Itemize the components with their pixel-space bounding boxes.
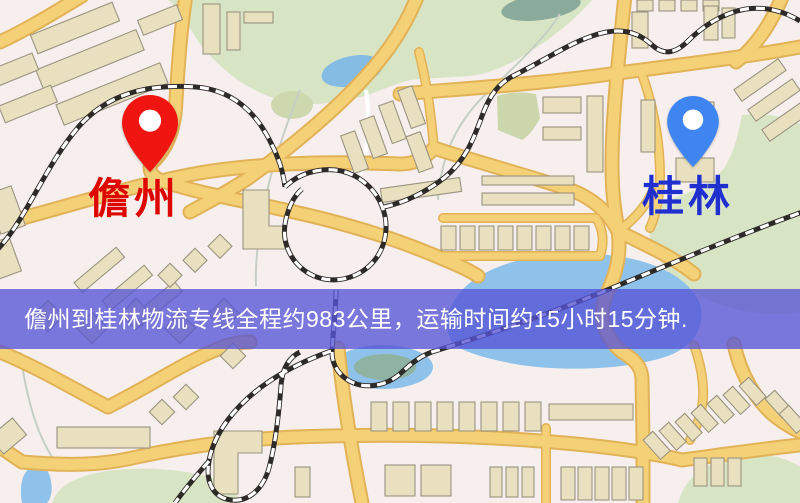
origin-pin-icon xyxy=(122,95,178,172)
destination-pin[interactable] xyxy=(667,96,719,167)
destination-label: 桂林 xyxy=(642,176,734,218)
route-info-banner: 儋州到桂林物流专线全程约983公里，运输时间约15小时15分钟. xyxy=(0,289,800,349)
destination-pin-icon xyxy=(667,96,719,167)
map-viewport[interactable]: 儋州 桂林 儋州到桂林物流专线全程约983公里，运输时间约15小时15分钟. xyxy=(0,0,800,503)
origin-label: 儋州 xyxy=(88,178,180,220)
route-info-text: 儋州到桂林物流专线全程约983公里，运输时间约15小时15分钟. xyxy=(24,306,688,332)
map-artwork xyxy=(0,0,800,503)
origin-pin[interactable] xyxy=(122,95,178,172)
